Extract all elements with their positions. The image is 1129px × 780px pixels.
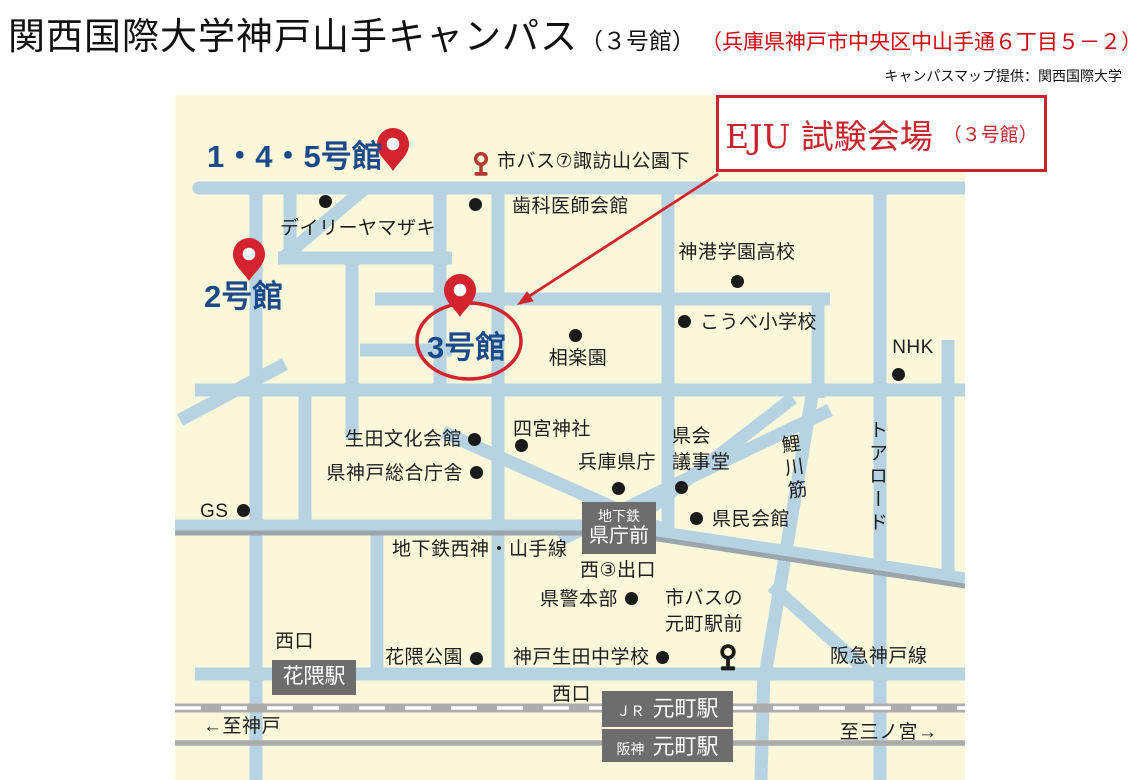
map-labels: 市バス⑦諏訪山公園下歯科医師会館デイリーヤマザキ神港学園高校こうべ小学校NHK相…	[175, 95, 965, 780]
label-kenmin-hall-dot	[690, 512, 703, 525]
label-dental-association-hall: 歯科医師会館	[512, 194, 629, 220]
station-box-hanshin-motomachi: 阪神元町駅	[602, 729, 733, 762]
station-box-kencho-mae-text-0: 地下鉄	[598, 508, 640, 524]
page-title: 関西国際大学神戸山手キャンパス （３号館） （兵庫県神戸市中央区中山手通６丁目５…	[8, 6, 1129, 60]
eju-venue-label: EJU 試験会場	[725, 110, 933, 158]
station-box-kencho-mae: 地下鉄県庁前	[582, 502, 656, 554]
label-city-bus-motomachi: 市バスの 元町駅前	[665, 586, 743, 637]
label-sorakuen-dot	[569, 329, 582, 342]
station-box-hanakuma-text-0: 花隈駅	[283, 660, 346, 690]
station-box-jr-motomachi: ＪＲ元町駅	[602, 691, 733, 727]
label-hyogo-pref-office: 兵庫県庁	[578, 450, 656, 476]
label-shinomiya-shrine: 四宮神社	[513, 417, 591, 443]
label-city-bus-suwayama: 市バス⑦諏訪山公園下	[497, 149, 690, 175]
station-box-jr-motomachi-text-0: ＪＲ	[616, 701, 644, 721]
label-kenmin-hall: 県民会館	[712, 507, 790, 533]
station-box-hanshin-motomachi-text-1: 元町駅	[652, 729, 718, 761]
label-pref-assembly-hall: 県会 議事堂	[672, 424, 731, 475]
page: 関西国際大学神戸山手キャンパス （３号館） （兵庫県神戸市中央区中山手通６丁目５…	[0, 0, 1129, 780]
station-box-jr-motomachi-text-1: 元町駅	[652, 691, 718, 723]
label-building-145: 1・4・5号館	[207, 131, 383, 176]
label-building-3: 3号館	[427, 322, 506, 367]
label-gs-dot	[237, 504, 250, 517]
title-address: （兵庫県神戸市中央区中山手通６丁目５－２）	[701, 26, 1129, 56]
station-box-hanshin-motomachi-text-0: 阪神	[616, 739, 644, 759]
label-shinko-gakuen-hs-dot	[731, 275, 744, 288]
label-shinko-gakuen-hs: 神港学園高校	[678, 240, 795, 266]
label-hankyu-kobe-line: 阪急神戸線	[830, 644, 928, 670]
label-west-exit-hanakuma: 西口	[275, 629, 314, 655]
label-kobe-ikuta-jhs: 神戸生田中学校	[513, 645, 650, 671]
label-to-kobe: ←至神戸	[203, 714, 281, 740]
label-hyogo-pref-office-dot	[612, 482, 625, 495]
label-daily-yamazaki: デイリーヤマザキ	[280, 216, 436, 242]
station-box-kencho-mae-text-1: 県庁前	[589, 525, 649, 548]
label-building-2: 2号館	[204, 271, 283, 316]
eju-venue-callout: EJU 試験会場 （３号館）	[716, 95, 1047, 172]
label-dental-association-hall-dot	[469, 198, 482, 211]
label-subway-seishin-yamate-line: 地下鉄西神・山手線	[392, 537, 568, 563]
label-koikawa-suji: 鯉川筋	[774, 432, 810, 504]
station-box-hanakuma: 花隈駅	[272, 660, 356, 695]
label-kobe-elementary-dot	[678, 315, 691, 328]
label-nhk: NHK	[892, 335, 934, 361]
label-tor-road: トアロード	[863, 420, 890, 535]
label-west-exit-3: 西③出口	[580, 558, 656, 584]
label-ikuta-culture-hall: 生田文化会館	[345, 427, 462, 453]
campus-map: 市バス⑦諏訪山公園下歯科医師会館デイリーヤマザキ神港学園高校こうべ小学校NHK相…	[175, 95, 965, 780]
label-hanakuma-park: 花隈公園	[385, 645, 463, 671]
label-ikuta-culture-hall-dot	[468, 433, 481, 446]
label-pref-assembly-hall-dot	[675, 481, 688, 494]
label-pref-kobe-office-dot	[470, 466, 483, 479]
label-pref-kobe-office: 県神戸総合庁舎	[326, 461, 463, 487]
label-pref-police-hq: 県警本部	[540, 587, 618, 613]
label-kobe-ikuta-jhs-dot	[656, 651, 669, 664]
label-hanakuma-park-dot	[470, 652, 483, 665]
label-pref-police-hq-dot	[625, 592, 638, 605]
label-kobe-elementary: こうべ小学校	[700, 310, 817, 336]
label-nhk-dot	[892, 368, 905, 381]
eju-venue-building: （３号館）	[943, 120, 1038, 147]
map-credit: キャンパスマップ提供：関西国際大学	[884, 66, 1122, 86]
label-to-sannomiya: 至三ノ宮→	[840, 720, 938, 746]
label-gs: GS	[200, 499, 228, 525]
title-building-no: （３号館）	[580, 22, 695, 56]
title-campus-name: 関西国際大学神戸山手キャンパス	[8, 6, 578, 60]
label-shinomiya-shrine-dot	[515, 439, 528, 452]
label-sorakuen: 相楽園	[549, 346, 608, 372]
label-daily-yamazaki-dot	[319, 195, 332, 208]
label-west-exit-motomachi: 西口	[552, 682, 591, 708]
